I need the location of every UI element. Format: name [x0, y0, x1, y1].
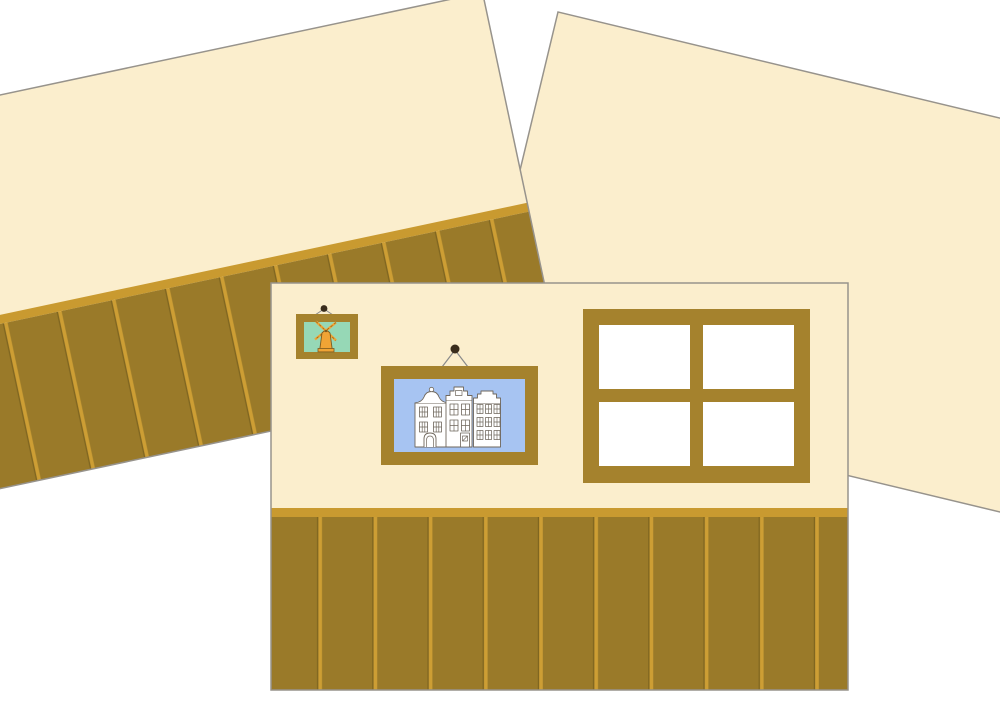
- small-picture-nail: [321, 305, 328, 312]
- window[interactable]: [583, 309, 810, 483]
- window-pane-top-left: [599, 325, 690, 389]
- windmill-base: [318, 349, 334, 352]
- large-picture-nail: [451, 345, 460, 354]
- front-wall-panel[interactable]: [271, 283, 848, 690]
- house-middle: [446, 387, 472, 447]
- house-left-door: [424, 433, 436, 447]
- house-middle-attic-window: [456, 391, 463, 396]
- house-left-ornament: [429, 387, 433, 391]
- window-pane-bottom-left: [599, 402, 690, 466]
- windmill-hub: [325, 330, 327, 332]
- window-pane-bottom-right: [703, 402, 794, 466]
- window-pane-top-right: [703, 325, 794, 389]
- canal-houses-illustration: [415, 387, 501, 447]
- house-middle-door: [461, 433, 470, 447]
- scene-canvas: [0, 0, 1000, 707]
- front-wainscot-rail: [271, 508, 848, 517]
- house-right: [474, 391, 501, 447]
- front-wainscot-panels: [271, 517, 848, 690]
